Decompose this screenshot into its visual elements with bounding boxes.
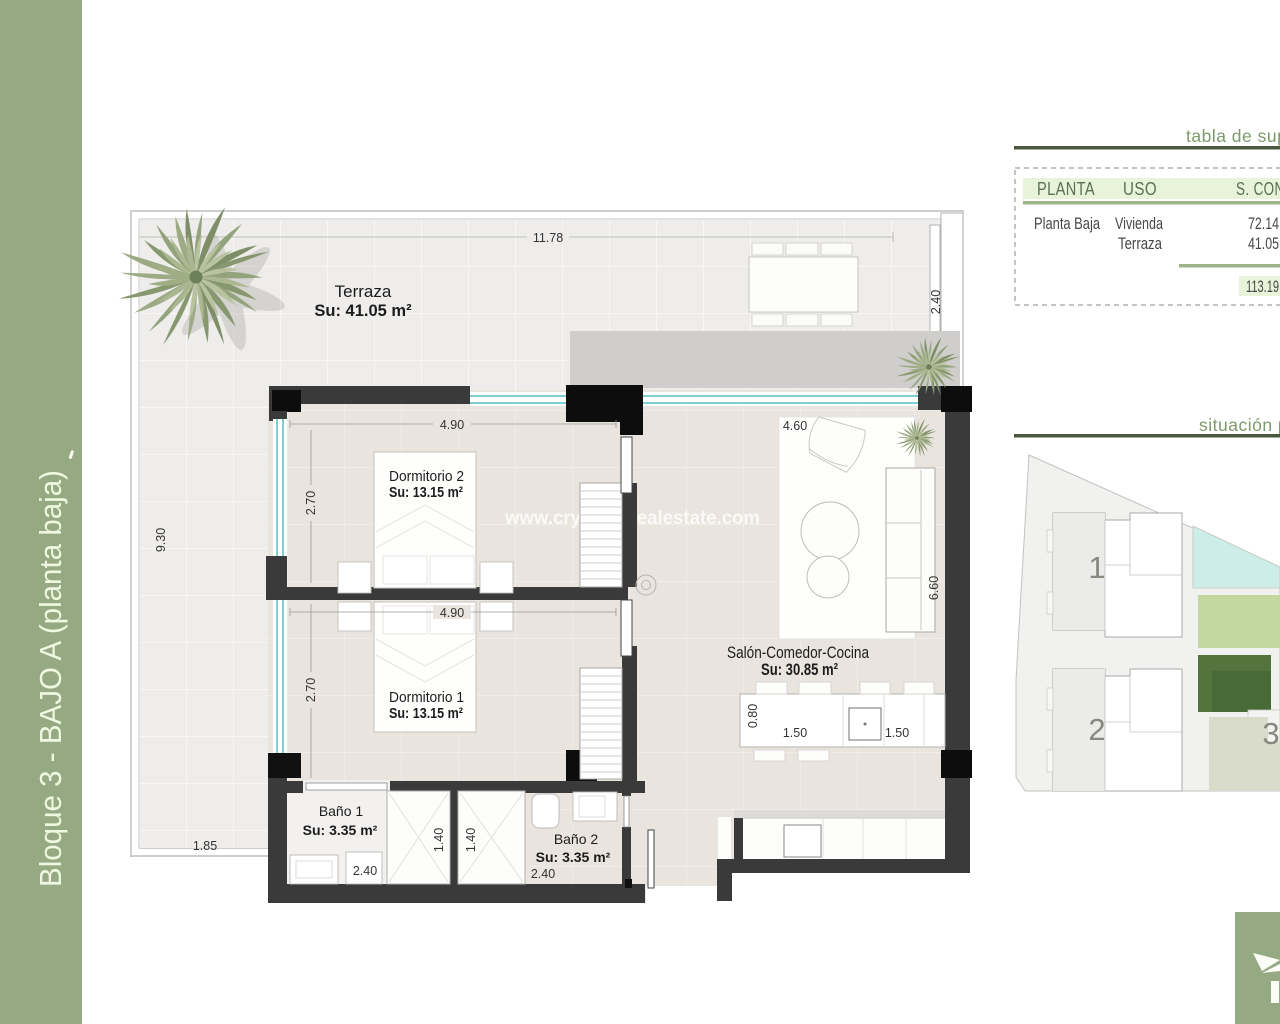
svg-text:Dormitorio 1: Dormitorio 1 bbox=[389, 689, 464, 706]
svg-text:3: 3 bbox=[1262, 716, 1279, 751]
svg-text:Dormitorio 2: Dormitorio 2 bbox=[389, 468, 464, 485]
svg-text:PLANTA: PLANTA bbox=[1037, 178, 1095, 199]
svg-text:1.50: 1.50 bbox=[885, 726, 909, 740]
svg-text:Su: 30.85 m²: Su: 30.85 m² bbox=[761, 661, 838, 679]
svg-text:Su: 3.35 m²: Su: 3.35 m² bbox=[536, 849, 611, 865]
svg-text:1: 1 bbox=[1088, 550, 1105, 585]
svg-text:2.40: 2.40 bbox=[929, 290, 943, 314]
svg-text:11.78: 11.78 bbox=[533, 231, 563, 245]
svg-text:1.50: 1.50 bbox=[783, 726, 807, 740]
svg-text:Terraza: Terraza bbox=[335, 282, 392, 301]
svg-text:2.70: 2.70 bbox=[304, 491, 318, 515]
svg-text:Su: 13.15 m²: Su: 13.15 m² bbox=[389, 484, 463, 501]
svg-text:113.19: 113.19 bbox=[1246, 278, 1279, 296]
svg-text:Bloque 3 - BAJO A (planta baja: Bloque 3 - BAJO A (planta baja) bbox=[33, 470, 68, 887]
svg-text:6.60: 6.60 bbox=[927, 576, 941, 600]
svg-text:0.80: 0.80 bbox=[746, 704, 760, 728]
svg-text:Su: 13.15 m²: Su: 13.15 m² bbox=[389, 705, 463, 722]
svg-text:9.30: 9.30 bbox=[154, 528, 168, 552]
svg-text:1.85: 1.85 bbox=[193, 839, 217, 853]
svg-text:Su: 3.35 m²: Su: 3.35 m² bbox=[303, 822, 378, 838]
svg-text:Planta Baja: Planta Baja bbox=[1034, 215, 1101, 233]
svg-text:Vivienda: Vivienda bbox=[1115, 215, 1164, 233]
svg-text:2: 2 bbox=[1088, 712, 1105, 747]
svg-text:2.40: 2.40 bbox=[353, 864, 377, 878]
svg-text:Baño 1: Baño 1 bbox=[319, 803, 364, 819]
svg-text:situación p: situación p bbox=[1199, 415, 1280, 435]
svg-text:1.40: 1.40 bbox=[432, 828, 446, 852]
svg-text:Baño 2: Baño 2 bbox=[554, 831, 599, 847]
svg-text:Terraza: Terraza bbox=[1118, 235, 1163, 253]
svg-text:4.90: 4.90 bbox=[440, 418, 464, 432]
svg-text:USO: USO bbox=[1123, 178, 1157, 199]
svg-text:Su: 41.05 m²: Su: 41.05 m² bbox=[314, 302, 412, 320]
svg-text:2.40: 2.40 bbox=[531, 867, 555, 881]
svg-text:2.70: 2.70 bbox=[304, 678, 318, 702]
svg-text:41.05: 41.05 bbox=[1248, 235, 1279, 253]
svg-text:S. CONS: S. CONS bbox=[1236, 178, 1280, 199]
svg-text:Salón-Comedor-Cocina: Salón-Comedor-Cocina bbox=[727, 643, 869, 662]
svg-text:tabla de supe: tabla de supe bbox=[1186, 126, 1280, 146]
svg-text:4.90: 4.90 bbox=[440, 606, 464, 620]
svg-text:4.60: 4.60 bbox=[783, 419, 807, 433]
svg-text:72.14: 72.14 bbox=[1248, 215, 1279, 233]
svg-text:1.40: 1.40 bbox=[464, 828, 478, 852]
